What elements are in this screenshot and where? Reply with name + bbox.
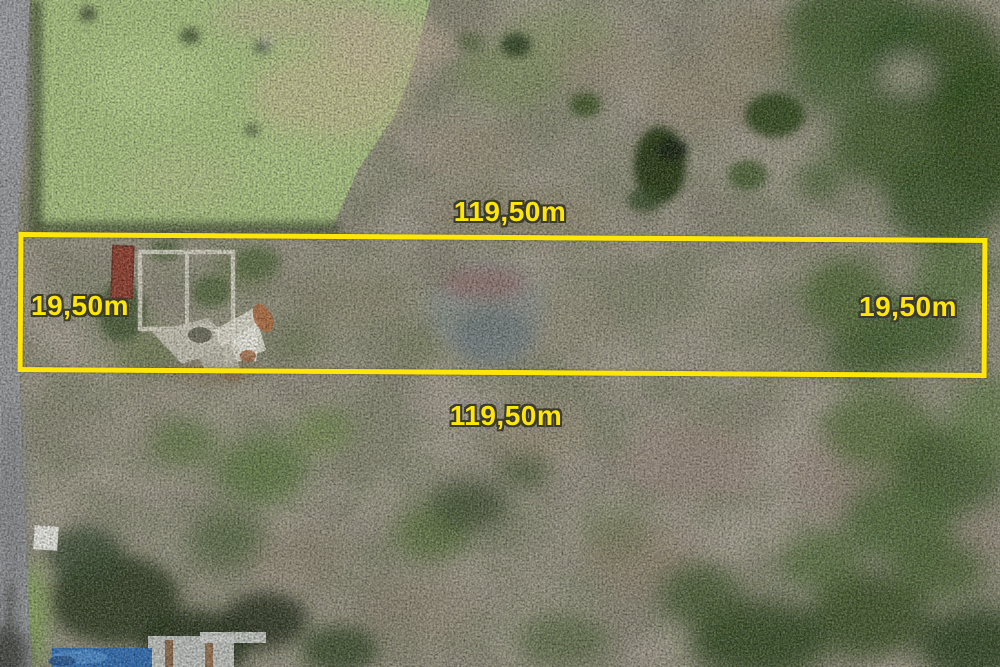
- dimension-label-top: 119,50m: [454, 196, 567, 228]
- dimension-label-left: 19,50m: [31, 290, 129, 322]
- dimension-label-right: 19,50m: [859, 291, 957, 323]
- plot-boundary-rectangle: [18, 232, 988, 378]
- dimension-label-bottom: 119,50m: [450, 400, 563, 432]
- aerial-photo: 119,50m 119,50m 19,50m 19,50m: [0, 0, 1000, 667]
